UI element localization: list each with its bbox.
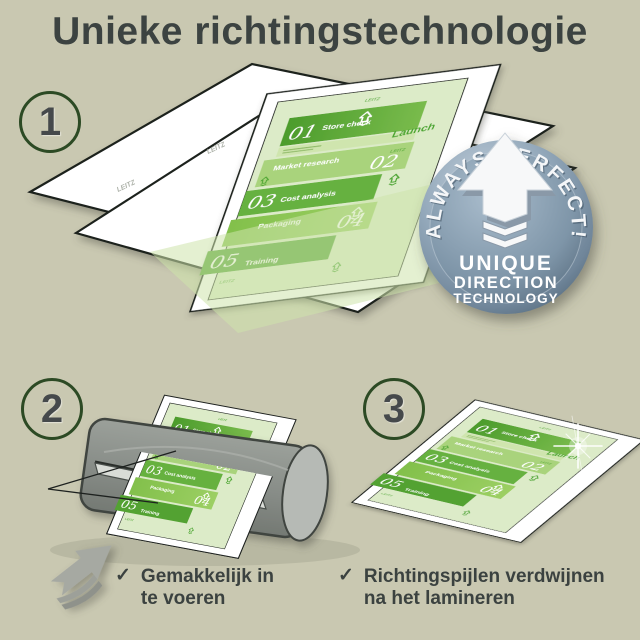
infographic: Unieke richtingstechnologie [0,0,640,640]
step3-number-circle: 3 [363,378,425,440]
caption-easy-feed: ✓ Gemakkelijk inte voeren [115,566,325,611]
caption-line: te voeren [141,588,225,609]
badge-line3: TECHNOLOGY [453,291,558,306]
step1-number: 1 [39,100,61,145]
checkmark-icon: ✓ [115,565,131,587]
badge-line2: DIRECTION [454,274,558,292]
step3-number: 3 [383,387,405,432]
caption-line: Gemakkelijk in [141,566,274,587]
badge-line1: UNIQUE [459,252,553,275]
caption-arrows-disappear: ✓ Richtingspijlen verdwijnenna het lamin… [338,566,628,611]
illustration-canvas: LEITZ 01 Store check Market research 02 … [0,0,640,640]
caption-line: Richtingspijlen verdwijnen [364,566,605,587]
caption-easy-feed-text: Gemakkelijk inte voeren [141,566,274,611]
step2-number: 2 [41,387,63,432]
step2-number-circle: 2 [21,378,83,440]
checkmark-icon: ✓ [338,565,354,587]
step1-number-circle: 1 [19,91,81,153]
caption-line: na het lamineren [364,588,515,609]
caption-arrows-disappear-text: Richtingspijlen verdwijnenna het laminer… [364,566,605,611]
